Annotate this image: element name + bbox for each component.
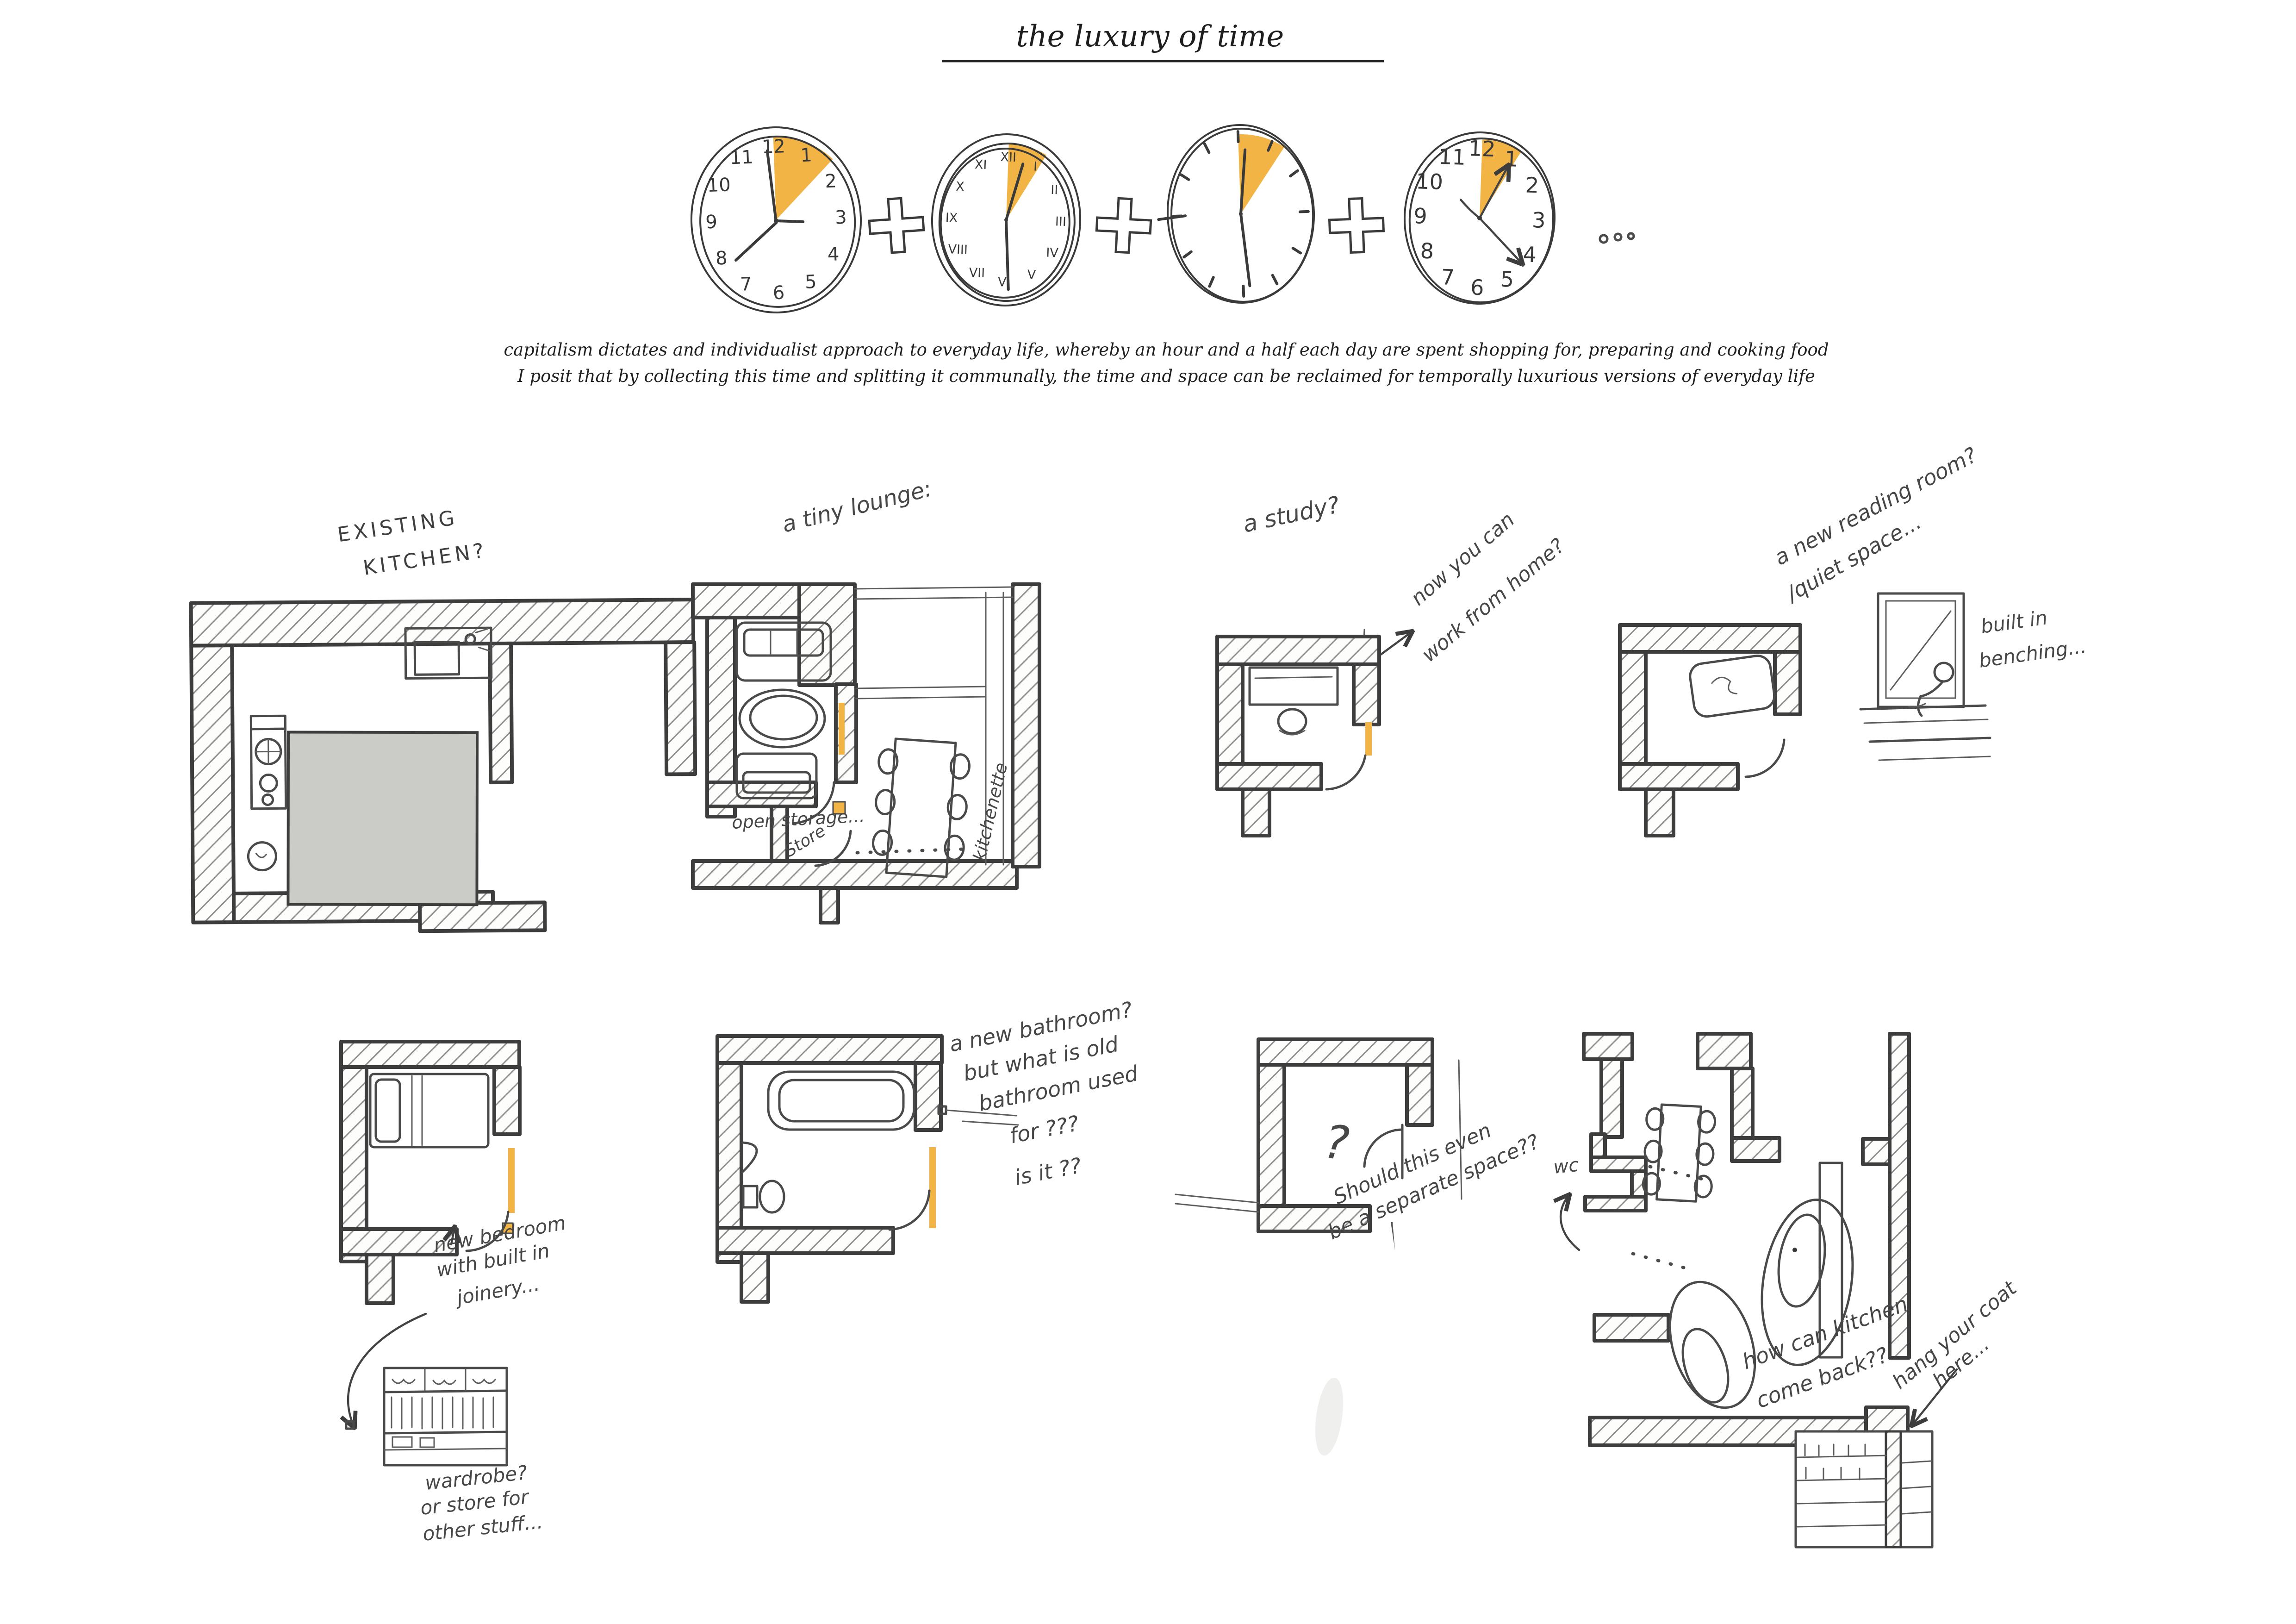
floor-plan-study: a study? now you can work from home? <box>1217 491 1569 836</box>
clock-numeral: 4 <box>1523 242 1537 267</box>
floor-plan-separate-space: ? Should this even be a separate space?? <box>1176 1039 1543 1250</box>
clock-numeral: II <box>1051 183 1058 198</box>
clock-3-icon <box>1155 123 1317 306</box>
clock-numeral: 8 <box>715 248 728 269</box>
header: the luxury of time <box>942 19 1384 61</box>
clock-1-icon: 12 1 2 3 4 5 6 7 8 9 10 11 <box>688 125 864 316</box>
bench-note-line2: benching... <box>1978 635 2088 672</box>
kitchen-label-line2: KITCHEN? <box>361 538 489 580</box>
arrow-target-marker <box>346 1421 354 1429</box>
dining-table <box>871 738 971 878</box>
question-mark: ? <box>1321 1115 1351 1171</box>
clock-numeral: IV <box>1046 246 1059 261</box>
accent-threshold <box>508 1148 515 1213</box>
plus-icon <box>868 197 925 254</box>
lounge-label: a tiny lounge: <box>779 475 934 537</box>
clock-numeral: 10 <box>707 174 731 196</box>
pencil-smudge <box>1311 1376 1347 1457</box>
ellipsis-dots-icon <box>1600 233 1634 243</box>
clock-numeral: 7 <box>1441 264 1455 290</box>
clock-numeral: X <box>956 180 965 194</box>
hour-hand <box>734 223 778 260</box>
clock-numeral: IX <box>945 211 958 225</box>
clock-numeral: 7 <box>740 274 752 295</box>
minute-hand <box>1241 214 1250 286</box>
sketch-sheet: the luxury of time 12 1 2 3 4 5 6 7 8 9 … <box>0 0 2296 1624</box>
floor-plan-tiny-lounge: a tiny lounge: Store <box>693 475 1039 923</box>
bedroom-note-line3: joinery... <box>453 1272 541 1309</box>
door-arc <box>890 1191 929 1230</box>
bathroom-note-line4: for ??? <box>1008 1111 1081 1149</box>
clock-numeral: 4 <box>827 244 840 265</box>
dining-table <box>1643 1104 1716 1202</box>
clock-4-icon: 12 1 2 3 4 5 6 7 8 9 10 11 <box>1402 130 1558 306</box>
clock-numeral: XI <box>974 157 987 172</box>
door-arc <box>1746 740 1784 777</box>
clock-numeral: 6 <box>1470 275 1484 300</box>
minute-hand <box>1478 218 1524 263</box>
clock-numeral: 6 <box>772 282 785 304</box>
pencil-mark <box>1391 1222 1395 1250</box>
sink <box>742 1143 757 1172</box>
second-hand <box>776 220 803 223</box>
clock-numeral: 3 <box>834 207 847 229</box>
kitchen-bin <box>248 842 276 870</box>
accent-threshold <box>839 703 845 755</box>
desk <box>1250 668 1338 705</box>
page-title: the luxury of time <box>1016 19 1284 54</box>
floor-plan-bathroom: a new bathroom? but what is old bathroom… <box>717 997 1140 1302</box>
clock-numeral: 2 <box>1525 172 1539 198</box>
wc-arrow <box>1561 1195 1579 1250</box>
clock-numeral: 12 <box>1468 136 1496 162</box>
coffee-table <box>740 690 825 747</box>
annotation-arrow <box>1377 632 1412 657</box>
open-storage-label: open storage... <box>731 806 865 833</box>
desk-chair <box>1278 709 1306 735</box>
study-note-line2: work from home? <box>1417 534 1569 667</box>
time-wedge <box>1238 133 1287 214</box>
accent-threshold <box>929 1147 936 1228</box>
clock-numeral: 5 <box>1500 267 1514 292</box>
caption: capitalism dictates and individualist ap… <box>504 340 1829 386</box>
clock-numeral: III <box>1055 214 1066 229</box>
plus-icon <box>1095 197 1152 254</box>
floor-plan-existing-kitchen: EXISTING KITCHEN? <box>190 504 696 933</box>
clock-numeral: 11 <box>1438 144 1466 170</box>
sofa <box>737 754 816 798</box>
plus-icon <box>1329 198 1384 253</box>
bathtub <box>768 1072 914 1130</box>
clock-numeral: V <box>1027 268 1036 282</box>
stove-hob <box>251 716 286 809</box>
clock-numeral: 2 <box>825 170 837 192</box>
bathroom-note-line5: is it ?? <box>1013 1153 1083 1190</box>
clock-numeral: 8 <box>1420 238 1434 264</box>
kitchen-label-line1: EXISTING <box>336 506 459 547</box>
window-seat-sketch <box>1860 593 1990 760</box>
kitchenette-label: kitchenette <box>969 761 1012 863</box>
dotted-line <box>1633 1254 1687 1268</box>
floor-plan-bedroom: new bedroom with built in joinery... war… <box>341 1042 567 1545</box>
clock-numeral: 5 <box>804 271 817 293</box>
clock-numeral: VIII <box>948 242 968 257</box>
coat-cabinet-elevation <box>1796 1431 1932 1547</box>
caption-line-1: capitalism dictates and individualist ap… <box>504 340 1829 360</box>
clock-numeral: VII <box>969 266 985 281</box>
clock-numeral: 9 <box>1413 203 1428 229</box>
reading-chair <box>1688 654 1776 718</box>
toilet <box>743 1181 784 1212</box>
clock-numeral: I <box>1033 160 1038 174</box>
clock-numeral: 10 <box>1415 169 1443 194</box>
wc-label: wc <box>1552 1154 1580 1178</box>
bed <box>370 1074 488 1147</box>
clock-numeral: XII <box>1000 150 1016 165</box>
clock-numeral: 9 <box>705 211 718 233</box>
accent-threshold <box>1365 722 1372 756</box>
wardrobe-elevation <box>384 1368 507 1465</box>
clock-2-icon: XII I II III IV V VI VII VIII IX X XI <box>929 132 1083 308</box>
kitchen-gray-zone <box>288 732 477 905</box>
floor-plan-reading-room: a new reading room? /quiet space... bu <box>1620 442 2088 836</box>
second-hand <box>1158 216 1185 219</box>
clock-numeral: 1 <box>800 144 813 166</box>
door-arc <box>1326 756 1365 789</box>
study-label: a study? <box>1240 491 1342 538</box>
bench-note-line1: built in <box>1979 606 2049 638</box>
clock-numeral: 3 <box>1531 207 1546 233</box>
clock-numeral: 11 <box>729 147 753 169</box>
clock-numeral: 12 <box>761 136 785 158</box>
clock-sequence: 12 1 2 3 4 5 6 7 8 9 10 11 XII I <box>688 123 1634 316</box>
caption-line-2: I posit that by collecting this time and… <box>517 366 1815 386</box>
